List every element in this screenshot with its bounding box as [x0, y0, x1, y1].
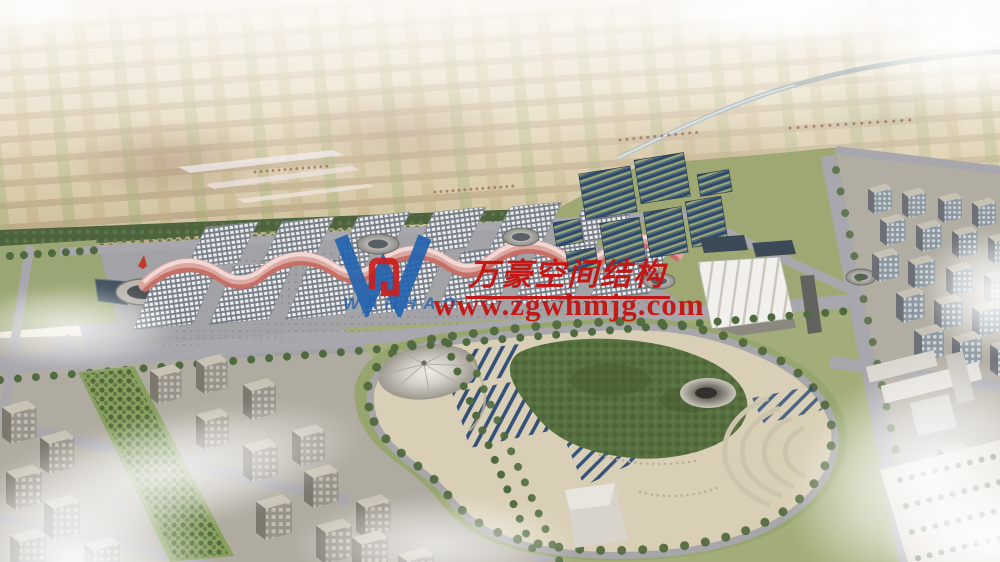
solar-array	[697, 170, 732, 197]
funnel-pavilion	[680, 378, 736, 408]
website-watermark: www.zgwhmjg.com	[433, 287, 705, 323]
river-canal	[618, 52, 1000, 158]
aerial-render-scene: WANHAO 万豪空间结构 www.zgwhmjg.com	[0, 0, 1000, 562]
solar-array	[634, 152, 690, 203]
solar-array	[579, 166, 638, 220]
solar-array	[553, 219, 583, 247]
pavilion-dome	[503, 228, 539, 246]
airport-runways	[178, 150, 374, 203]
vaulted-roof	[698, 257, 794, 329]
